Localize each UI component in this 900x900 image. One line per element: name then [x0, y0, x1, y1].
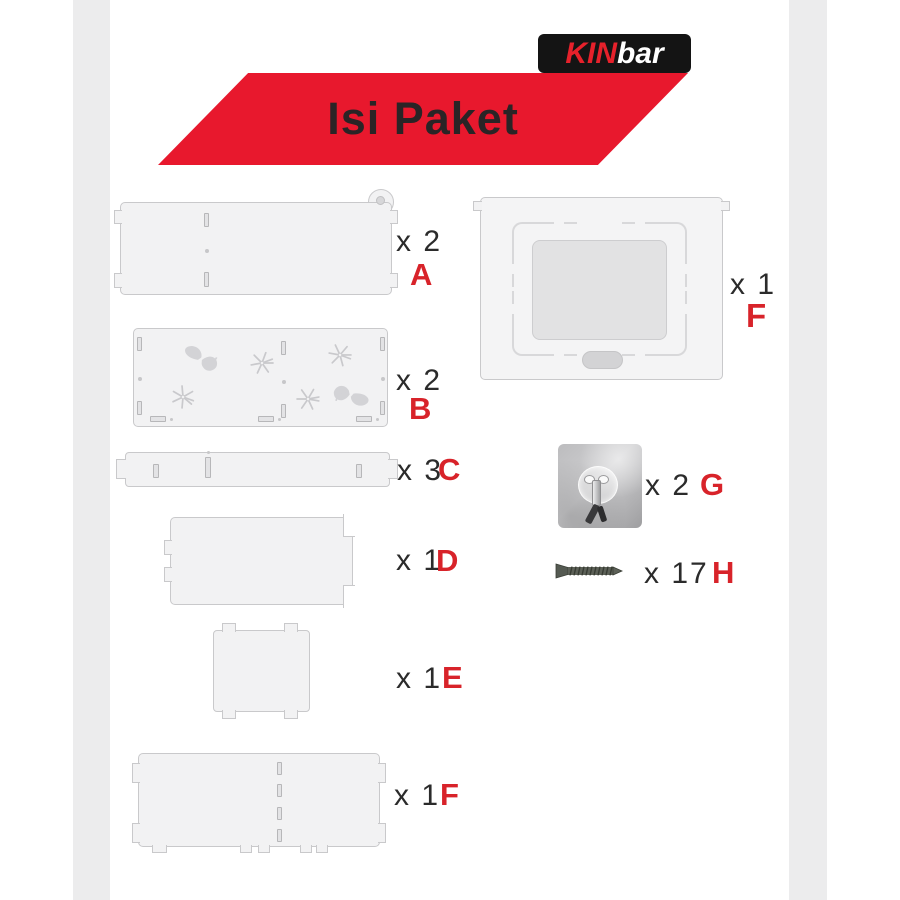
- part-d-tab: [164, 567, 172, 582]
- part-b-slot: [356, 416, 372, 422]
- logo-bar-text: bar: [617, 37, 664, 71]
- adhesive-hook-photo: [558, 444, 642, 528]
- qty-label-e: x 1: [396, 664, 442, 694]
- fold-line-slot: [277, 762, 282, 775]
- part-d-notch: [343, 514, 355, 537]
- butterfly-icon: [184, 340, 220, 376]
- sparkle-icon: [251, 353, 273, 373]
- sparkle-icon: [168, 382, 198, 412]
- part-d-notch: [343, 585, 355, 608]
- fold-line-slot: [277, 807, 282, 820]
- screw-icon: [555, 561, 625, 581]
- part-f-strip-tab: [378, 763, 386, 783]
- part-f-strip-tab: [240, 845, 252, 853]
- hook-stem-icon: [592, 480, 601, 506]
- sparkle-icon: [296, 387, 321, 411]
- kinbar-logo: KINbar: [538, 34, 691, 73]
- part-b-pilot-hole: [170, 418, 173, 421]
- part-a-slot: [204, 272, 209, 287]
- part-c-strip: [125, 452, 390, 487]
- part-d-tab: [164, 540, 172, 555]
- part-b-slot: [137, 337, 142, 351]
- part-b-pilot-hole: [138, 377, 142, 381]
- part-f-strip-tab: [152, 845, 167, 853]
- part-e-tab: [284, 623, 298, 632]
- page-title: Isi Paket: [327, 93, 519, 145]
- qty-label-c: x 3: [397, 456, 443, 486]
- fold-line-slot: [277, 829, 282, 842]
- part-c-slot: [153, 464, 159, 478]
- part-d-panel: [170, 517, 353, 605]
- part-a-tab: [114, 273, 122, 288]
- part-b-slot: [258, 416, 274, 422]
- part-letter-d: D: [436, 545, 458, 576]
- part-letter-a: A: [410, 259, 432, 290]
- part-f-panel-tab: [721, 201, 730, 211]
- part-b-pilot-hole: [282, 380, 286, 384]
- part-a-pilot-hole: [205, 249, 209, 253]
- left-photo-edge: [73, 0, 110, 900]
- package-contents-sheet: KINbar Isi Paket x 2 A: [0, 0, 900, 900]
- part-letter-b: B: [409, 393, 431, 424]
- part-b-pilot-hole: [376, 418, 379, 421]
- part-letter-f-panel: F: [746, 299, 766, 332]
- part-letter-f-strip: F: [440, 779, 459, 810]
- part-f-strip-tab: [132, 763, 140, 783]
- part-e-tab: [222, 710, 236, 719]
- right-photo-edge: [789, 0, 827, 900]
- part-a-tab: [390, 273, 398, 288]
- part-a-slot: [204, 213, 209, 227]
- part-f-strip-tab: [378, 823, 386, 843]
- part-b-slot: [380, 337, 385, 351]
- butterfly-icon: [330, 377, 370, 417]
- part-c-slot: [356, 464, 362, 478]
- part-b-slot: [150, 416, 166, 422]
- part-e-tab: [222, 623, 236, 632]
- part-b-pilot-hole: [381, 377, 385, 381]
- qty-label-a: x 2: [396, 227, 442, 257]
- part-a-tab: [390, 210, 398, 224]
- part-b-slot: [281, 341, 286, 355]
- title-banner: Isi Paket: [158, 73, 688, 165]
- part-letter-g: G: [700, 469, 724, 500]
- sparkle-icon: [326, 342, 353, 369]
- qty-label-f-strip: x 1: [394, 781, 440, 811]
- qty-label-f-panel: x 1: [730, 270, 776, 300]
- part-b-slot: [281, 404, 286, 418]
- thumb-slot: [582, 351, 623, 369]
- hook-tip-icon: [597, 505, 608, 522]
- part-b-cutout-decorations: [135, 330, 388, 426]
- part-letter-e: E: [442, 662, 463, 693]
- part-f-strip-tab: [300, 845, 312, 853]
- part-a-tab: [114, 210, 122, 224]
- part-b-slot: [380, 401, 385, 415]
- part-a-panel: [120, 202, 392, 295]
- part-e-panel: [213, 630, 310, 712]
- logo-kin-text: KIN: [565, 37, 617, 71]
- part-b-pilot-hole: [278, 418, 281, 421]
- part-f-panel-tab: [473, 201, 482, 211]
- part-e-tab: [284, 710, 298, 719]
- fold-line-slot: [277, 784, 282, 797]
- part-letter-h: H: [712, 557, 734, 588]
- part-c-tab: [116, 459, 126, 479]
- part-f-strip-tab: [258, 845, 270, 853]
- part-f-strip-panel: [138, 753, 380, 847]
- hanger-hole-icon: [376, 196, 385, 205]
- part-f-strip-tab: [316, 845, 328, 853]
- display-window: [532, 240, 667, 340]
- part-c-pilot-hole: [207, 451, 210, 454]
- part-c-slot: [205, 457, 211, 478]
- part-f-strip-tab: [132, 823, 140, 843]
- qty-label-h: x 17: [644, 559, 709, 589]
- part-b-slot: [137, 401, 142, 415]
- part-letter-c: C: [438, 454, 460, 485]
- qty-label-g: x 2: [645, 471, 691, 501]
